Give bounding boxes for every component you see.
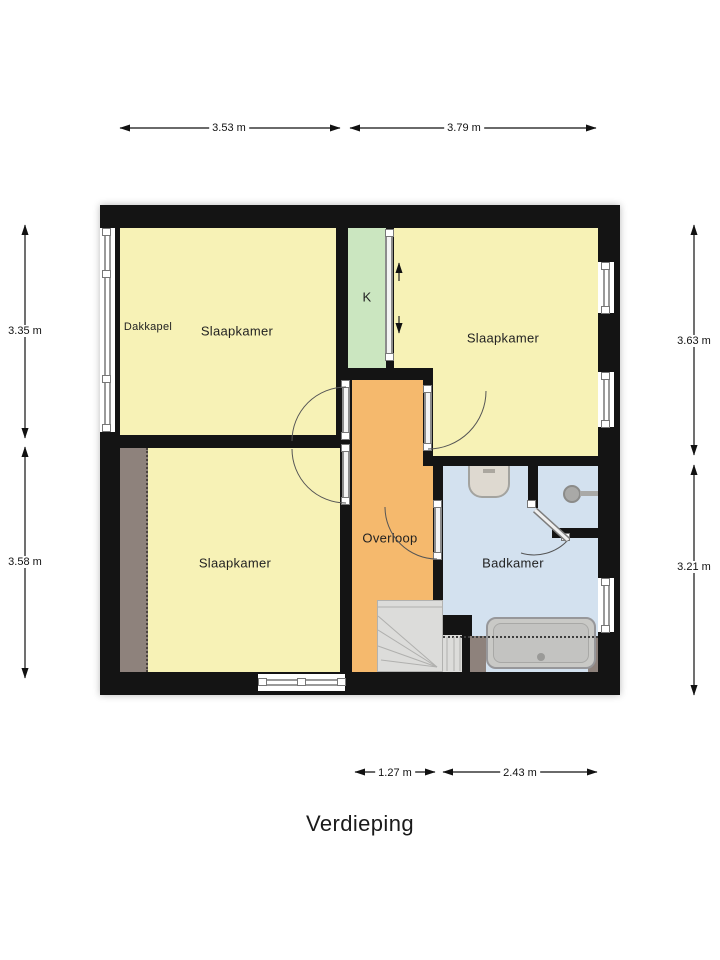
label-landing: Overloop <box>362 531 417 546</box>
dim-right-1: 3.63 m <box>674 335 714 347</box>
dim-bottom-2: 2.43 m <box>500 767 540 779</box>
tub-side-block-left <box>470 636 486 672</box>
label-bedroom-top-left: Slaapkamer <box>201 324 273 339</box>
door-jamb <box>341 444 350 452</box>
door-jamb <box>385 229 394 237</box>
window-mullion <box>102 270 111 278</box>
stairs <box>377 600 443 672</box>
sloped-ceiling-strip <box>120 448 148 672</box>
label-closet: K <box>363 290 372 305</box>
door-bathroom <box>434 508 442 558</box>
stairs-winder-extension <box>443 635 462 672</box>
floor-title: Verdieping <box>306 811 414 837</box>
dim-right-2: 3.21 m <box>674 561 714 573</box>
window-mullion <box>601 578 610 586</box>
label-bedroom-right: Slaapkamer <box>467 331 539 346</box>
sink-faucet-icon <box>483 469 495 473</box>
door-jamb <box>433 500 442 508</box>
bathtub-drain-icon <box>537 653 545 661</box>
door-jamb <box>527 500 536 508</box>
shower-head-icon <box>563 485 581 503</box>
window-mullion <box>601 372 610 380</box>
window-mullion <box>102 424 111 432</box>
dim-left-2: 3.58 m <box>5 556 45 568</box>
door-jamb <box>341 380 350 388</box>
label-dakkapel: Dakkapel <box>124 321 172 333</box>
door-jamb <box>341 497 350 505</box>
window-mullion <box>601 625 610 633</box>
door-jamb <box>433 552 442 560</box>
dim-top-2: 3.79 m <box>444 122 484 134</box>
window-mullion <box>297 678 306 686</box>
room-bedroom-right-upper <box>394 228 598 368</box>
window-right-2 <box>598 372 614 427</box>
door-jamb <box>385 353 394 361</box>
window-mullion <box>102 228 111 236</box>
floorplan-page: Dakkapel Slaapkamer K Slaapkamer Slaapka… <box>0 0 720 960</box>
window-bathroom <box>598 578 614 632</box>
window-mullion <box>258 678 267 686</box>
window-mullion <box>601 306 610 314</box>
dim-top-1: 3.53 m <box>209 122 249 134</box>
door-jamb <box>423 385 432 393</box>
label-bedroom-bottom-left: Slaapkamer <box>199 556 271 571</box>
wall-shower-partition-h <box>552 528 598 538</box>
label-bathroom: Badkamer <box>482 556 544 571</box>
door-bedroom-top-left <box>342 386 350 438</box>
window-mullion <box>601 262 610 270</box>
door-bedroom-bottom-left <box>342 450 350 503</box>
window-mullion <box>102 375 111 383</box>
shower-arm-icon <box>580 491 598 496</box>
window-mullion <box>337 678 346 686</box>
closet-sliding-door <box>385 232 393 356</box>
door-jamb <box>341 432 350 440</box>
door-bedroom-right <box>424 391 432 449</box>
dim-left-1: 3.35 m <box>5 325 45 337</box>
door-jamb <box>423 443 432 451</box>
door-jamb <box>561 533 570 541</box>
window-dormer-left <box>100 228 115 432</box>
bathroom-slope-dashed-line <box>443 636 598 638</box>
room-bedroom-right-lower <box>433 368 598 456</box>
window-mullion <box>601 420 610 428</box>
dim-bottom-1: 1.27 m <box>375 767 415 779</box>
